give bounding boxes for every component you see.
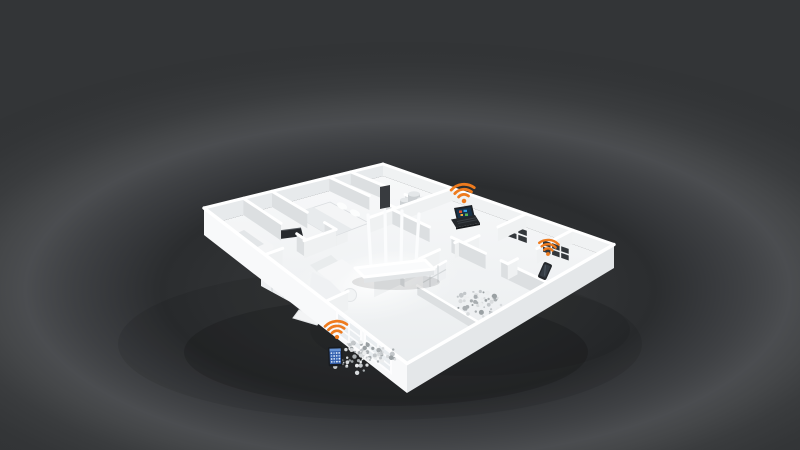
plant-speck xyxy=(483,306,485,308)
wifi-coverage-illustration xyxy=(0,0,800,450)
plant-speck xyxy=(346,364,348,366)
plant-speck xyxy=(344,348,347,351)
plant-speck xyxy=(361,360,363,362)
plant-speck xyxy=(362,351,366,355)
laptop-screen-content xyxy=(465,214,468,217)
plant-speck xyxy=(490,308,492,310)
plant-speck xyxy=(477,295,479,297)
plant-speck xyxy=(490,300,494,304)
plant-speck xyxy=(363,346,367,350)
tablet xyxy=(328,347,343,367)
plant-speck xyxy=(365,364,368,367)
plant-speck xyxy=(382,347,385,350)
plant-speck xyxy=(379,357,382,360)
plant-speck xyxy=(377,360,379,362)
plant-speck xyxy=(363,369,365,371)
plant-speck xyxy=(475,310,477,312)
plant-speck xyxy=(463,296,466,299)
plant-speck xyxy=(466,305,470,309)
plant-speck xyxy=(355,371,359,375)
plant-speck xyxy=(490,297,493,300)
plant-speck xyxy=(483,297,485,299)
plant-speck xyxy=(389,355,394,360)
plant-speck xyxy=(351,341,356,346)
plant-speck xyxy=(359,340,363,344)
plant-speck xyxy=(485,291,490,296)
plant-speck xyxy=(346,357,348,359)
plant-speck xyxy=(350,348,354,352)
wall-living-east-top xyxy=(455,241,459,243)
laptop-screen-content xyxy=(461,214,464,216)
plant-speck xyxy=(463,299,466,302)
plant-speck xyxy=(360,351,362,353)
router-antenna xyxy=(401,211,402,264)
laptop-screen-content xyxy=(459,211,462,214)
plant-speck xyxy=(369,359,371,361)
plant-speck xyxy=(381,352,383,354)
router-antenna xyxy=(385,211,386,266)
plant-speck xyxy=(470,299,473,302)
plant-speck xyxy=(474,295,478,299)
plant-speck xyxy=(481,297,484,300)
plant-speck xyxy=(459,293,464,298)
plant-speck xyxy=(392,348,394,350)
plant-speck xyxy=(458,299,462,303)
plant-speck xyxy=(352,354,356,358)
plant-speck xyxy=(479,302,483,306)
plant-speck xyxy=(466,312,470,316)
plant-speck xyxy=(487,303,491,307)
plant-speck xyxy=(373,353,377,357)
scene-canvas xyxy=(0,0,800,450)
plant-speck xyxy=(500,304,503,307)
plant-speck xyxy=(394,358,397,361)
closet-door-dark xyxy=(380,185,390,209)
plant-speck xyxy=(485,299,488,302)
plant-speck xyxy=(479,310,484,315)
laptop-screen-content xyxy=(464,210,468,212)
plant-speck xyxy=(355,364,359,368)
plant-speck xyxy=(351,360,354,363)
plant-speck xyxy=(366,343,370,347)
plant-speck xyxy=(472,291,474,293)
plant-speck xyxy=(487,298,489,300)
plant-speck xyxy=(467,296,469,298)
plant-speck xyxy=(457,307,459,309)
plant-speck xyxy=(358,363,362,367)
plant-speck xyxy=(457,296,459,298)
plant-speck xyxy=(483,291,485,293)
plant-speck xyxy=(476,301,479,304)
plant-speck xyxy=(376,348,381,353)
plant-speck xyxy=(357,359,360,362)
plant-speck xyxy=(343,362,345,364)
plant-speck xyxy=(362,358,364,360)
storage-cylinder-top xyxy=(408,191,420,196)
plant-speck xyxy=(371,347,374,350)
plant-speck xyxy=(479,290,482,293)
plant-speck xyxy=(354,351,356,353)
plant-speck xyxy=(346,360,350,364)
plant-speck xyxy=(472,304,474,306)
tablet-statusbar xyxy=(329,348,340,351)
